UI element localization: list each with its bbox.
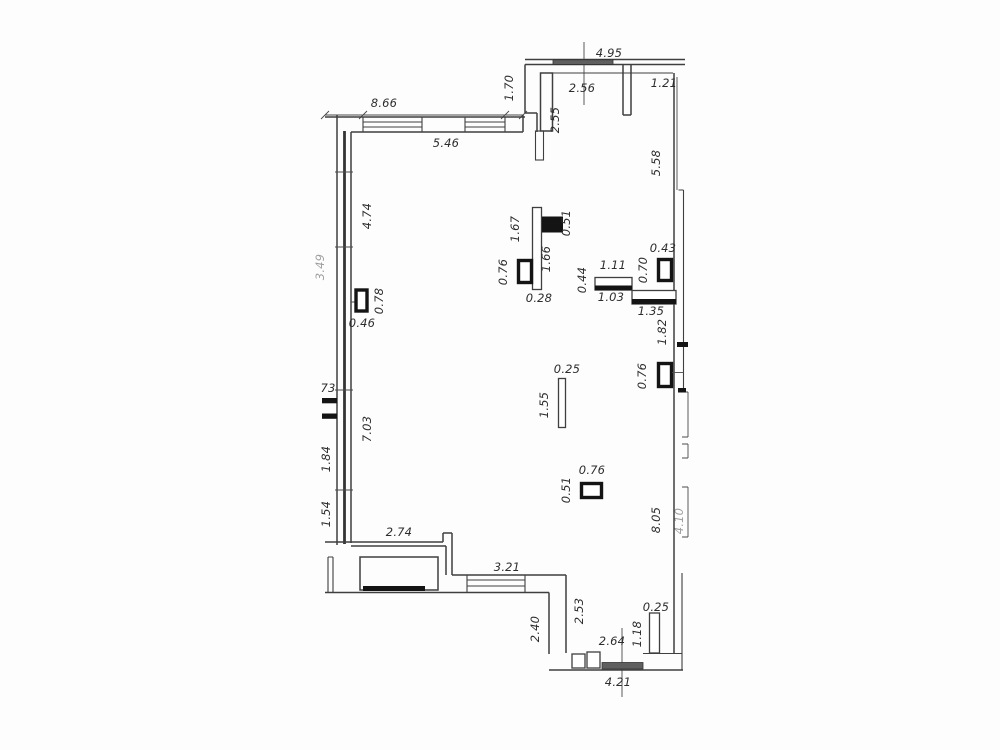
center-pier <box>559 379 566 428</box>
south-window-glazing <box>467 575 525 592</box>
entry-left-jog <box>525 65 537 133</box>
dim-label-0.46: 0.46 <box>349 316 375 330</box>
west-wall-tick <box>322 414 337 419</box>
west-wall <box>322 115 367 545</box>
east-column-upper <box>659 260 672 281</box>
dim-label-0.43: 0.43 <box>650 241 676 255</box>
dim-label-0.78: 0.78 <box>372 288 386 314</box>
dim-label-1.70: 1.70 <box>502 75 516 101</box>
dim-label-0.25: 0.25 <box>554 362 580 376</box>
dim-label-1.84: 1.84 <box>319 446 333 472</box>
dim-label-8.05: 8.05 <box>649 507 663 533</box>
west-wall-tick <box>322 398 337 403</box>
window-glazing <box>363 117 422 132</box>
dim-label-1.35: 1.35 <box>638 304 664 318</box>
dim-label-1.66: 1.66 <box>539 246 553 272</box>
south-wall-inner <box>351 546 446 575</box>
dim-label-0.70: 0.70 <box>636 257 650 283</box>
dim-label-0.76: 0.76 <box>635 363 649 389</box>
balcony-outline <box>360 557 438 590</box>
west-column <box>356 290 367 311</box>
east-edge-bracket <box>682 392 688 437</box>
entry-right-jog <box>623 65 631 116</box>
east-wall-outer <box>679 190 684 390</box>
dim-label-1.21: 1.21 <box>651 76 677 90</box>
dim-label-4.95: 4.95 <box>596 46 622 60</box>
dim-label-0.44: 0.44 <box>575 267 589 293</box>
dim-label-1.03: 1.03 <box>598 290 624 304</box>
dim-label-4.10: 4.10 <box>672 508 686 534</box>
dim-label-5.58: 5.58 <box>649 150 663 176</box>
entry-partition-stub <box>536 131 544 160</box>
partition-column <box>519 261 532 283</box>
south-pier <box>650 613 660 653</box>
floor-plan-drawing: 4.952.561.702.551.215.588.665.464.741.67… <box>0 0 1000 750</box>
south-walls <box>325 533 683 670</box>
east-wall <box>674 73 688 670</box>
dim-label-2.74: 2.74 <box>386 525 412 539</box>
dim-label-2.56: 2.56 <box>569 81 595 95</box>
dim-label-1.67: 1.67 <box>508 215 522 242</box>
dim-label-2.55: 2.55 <box>548 107 562 133</box>
east-column-lower <box>659 364 672 387</box>
dim-label-73: 73 <box>320 381 335 395</box>
south-door-frame <box>587 652 600 668</box>
dim-label-5.46: 5.46 <box>433 136 459 150</box>
dim-label-4.21: 4.21 <box>605 675 631 689</box>
south-door-leaf <box>572 654 585 668</box>
dim-label-2.53: 2.53 <box>572 598 586 624</box>
center-partition <box>519 208 602 498</box>
dim-label-0.25: 0.25 <box>643 600 669 614</box>
dim-label-0.76: 0.76 <box>579 463 605 477</box>
dim-label-8.66: 8.66 <box>371 96 397 110</box>
dim-label-2.40: 2.40 <box>528 616 542 642</box>
floor-plan-canvas: 4.952.561.702.551.215.588.665.464.741.67… <box>0 0 1000 750</box>
south-window-hatch <box>602 663 643 670</box>
dim-label-3.49: 3.49 <box>313 254 327 280</box>
east-wall-nub <box>678 388 686 393</box>
east-edge-bracket <box>682 444 688 458</box>
west-wall-jogs <box>335 172 358 490</box>
east-wall-tick <box>677 342 688 347</box>
balcony-left-wall <box>328 557 333 592</box>
dim-label-0.28: 0.28 <box>526 291 552 305</box>
dim-label-0.76: 0.76 <box>496 259 510 285</box>
window-glazing <box>465 117 505 132</box>
dim-label-2.64: 2.64 <box>599 634 625 648</box>
balcony <box>328 557 438 592</box>
center-column <box>582 484 602 498</box>
dim-label-4.74: 4.74 <box>360 203 374 229</box>
top-window-hatch <box>553 60 613 65</box>
dim-label-1.82: 1.82 <box>655 319 669 345</box>
dim-label-1.55: 1.55 <box>537 392 551 418</box>
balcony-sill <box>363 586 425 591</box>
dim-label-1.11: 1.11 <box>600 258 626 272</box>
south-step-wall <box>549 575 566 654</box>
dim-label-1.54: 1.54 <box>319 501 333 527</box>
dim-label-0.51: 0.51 <box>559 477 573 503</box>
dim-label-3.21: 3.21 <box>494 560 520 574</box>
north-window-wall <box>325 115 525 132</box>
dim-label-7.03: 7.03 <box>360 416 374 442</box>
dim-label-1.18: 1.18 <box>630 621 644 647</box>
dim-label-0.51: 0.51 <box>559 210 573 236</box>
